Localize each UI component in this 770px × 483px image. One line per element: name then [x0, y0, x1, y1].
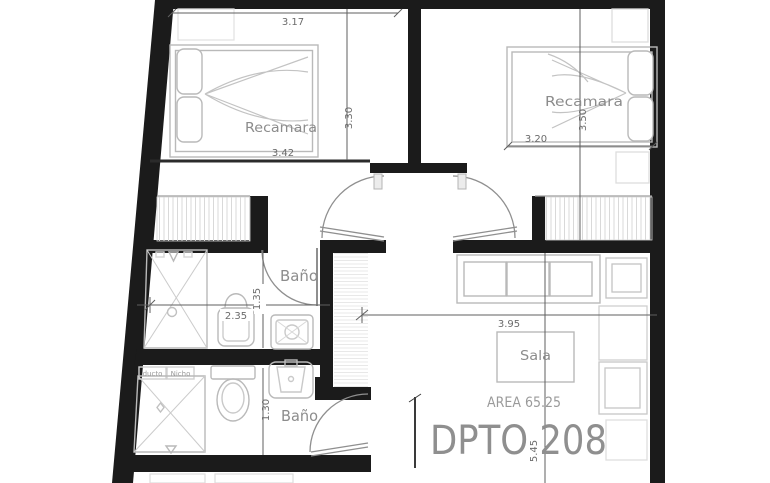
room-label-niche: Nicho [171, 370, 191, 378]
door-hinge-mark-left [374, 174, 382, 189]
below-wall-cabinet-2 [215, 474, 293, 483]
wall-bottom [116, 455, 371, 472]
room-label-bedroom-left: Recamara [245, 121, 317, 136]
shelf-3 [606, 420, 647, 460]
floor-plan-drawing: 3.17 3.42 3.30 3.20 3.50 3.95 5.45 2.35 … [0, 0, 770, 483]
dim-label-bath-lower-height: 1.30 [261, 399, 272, 421]
room-label-bath-lower: Baño [281, 407, 318, 425]
nightstand-bedroom-right-bottom [616, 152, 649, 183]
dim-label-bed1-top: 3.17 [282, 17, 304, 28]
wall-hall-top [370, 163, 467, 173]
titles: AREA 65.25 DPTO 208 [430, 395, 607, 464]
wall-closet-left-stub [250, 196, 268, 243]
wall-closet-right-stub [532, 196, 545, 243]
shelf-1 [599, 306, 647, 360]
shower-upper-drain [168, 308, 177, 317]
closet-right-hatch [546, 197, 652, 240]
sofa-cushion-1 [464, 262, 506, 296]
closet-left-hatch [157, 197, 250, 241]
dim-label-bed1-bottom: 3.42 [272, 148, 294, 159]
shaft-hatch [334, 253, 368, 387]
door-arc-bath-lower [310, 394, 368, 452]
door-hinge-mark-right [458, 174, 466, 189]
room-labels: Recamara Recamara Baño Baño Sala ducto N… [143, 95, 623, 425]
area-label: AREA 65.25 [487, 395, 561, 411]
dim-label-bath-upper-width: 2.35 [225, 311, 247, 322]
wall-top [160, 0, 663, 9]
room-label-bedroom-right: Recamara [545, 95, 623, 110]
room-label-living: Sala [520, 349, 551, 364]
door-leaf-bath-lower [311, 447, 368, 456]
bed-left-pillow-top [177, 49, 202, 94]
nightstand-bedroom-right-top [612, 9, 648, 42]
door-leaf-bath-lower-2 [311, 443, 368, 452]
side-table [606, 258, 647, 298]
sink-upper-basin-arc [225, 294, 247, 308]
sofa-cushion-2 [507, 262, 549, 296]
room-label-bath-upper: Baño [280, 267, 318, 285]
toilet-lower-bowl-inner [222, 383, 244, 413]
side-table-inner [612, 264, 641, 292]
dim-label-bed1-height: 3.30 [344, 107, 355, 129]
unit-label: DPTO 208 [430, 418, 607, 464]
below-wall-cabinet-1 [150, 474, 205, 483]
nightstand-bedroom-left [178, 9, 234, 40]
bath-upper-fixtures [144, 250, 313, 349]
bed-left-pillow-bottom [177, 97, 202, 142]
bed-right-pillow-bottom [628, 97, 653, 141]
sofa [457, 255, 600, 303]
wall-living-top [453, 240, 657, 253]
sink-lower-drain [289, 377, 294, 382]
wall-shaft-left [320, 240, 333, 400]
toilet-lower-tank [211, 366, 255, 379]
dim-label-bed2-width: 3.20 [525, 134, 547, 145]
washer-upper-cross [277, 321, 307, 343]
bed-left [170, 45, 318, 157]
wall-closet-left-bottom [142, 240, 268, 253]
wall-between-bedrooms [408, 9, 421, 165]
sofa-cushion-3 [550, 262, 592, 296]
below-wall-fixtures [150, 474, 293, 483]
sink-lower-basin [277, 367, 305, 392]
shower-upper-head-icon [169, 252, 178, 261]
dim-label-bed2-height: 3.50 [578, 109, 589, 131]
floor-plan: 3.17 3.42 3.30 3.20 3.50 3.95 5.45 2.35 … [0, 0, 770, 483]
room-label-duct: ducto [143, 370, 163, 378]
dim-label-living-width: 3.95 [498, 319, 520, 330]
shelf-2-inner [605, 368, 640, 408]
bed-right-pillow-top [628, 51, 653, 95]
wall-bath2-jamb [315, 377, 333, 389]
dim-label-bath-upper-height: 1.35 [252, 288, 263, 310]
